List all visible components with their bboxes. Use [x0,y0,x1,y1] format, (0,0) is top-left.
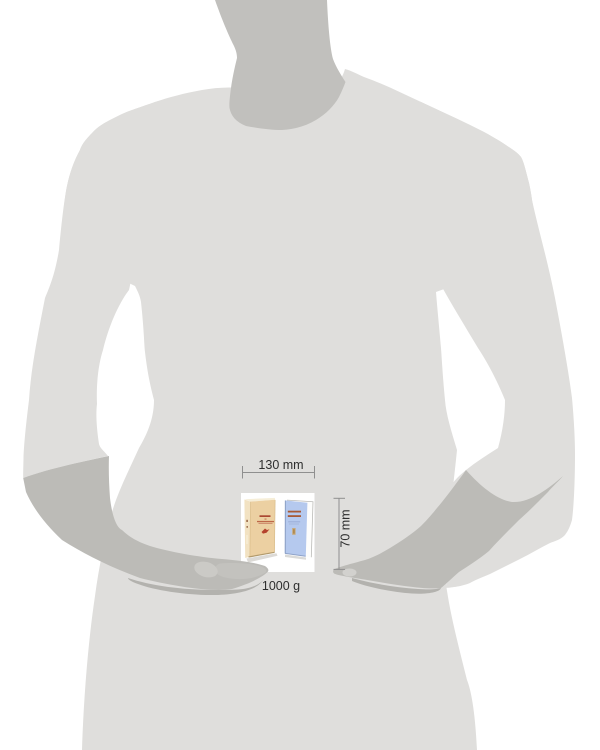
svg-text:130 mm: 130 mm [258,458,303,472]
svg-text:1000 g: 1000 g [262,579,300,593]
svg-text:70 mm: 70 mm [339,509,353,547]
